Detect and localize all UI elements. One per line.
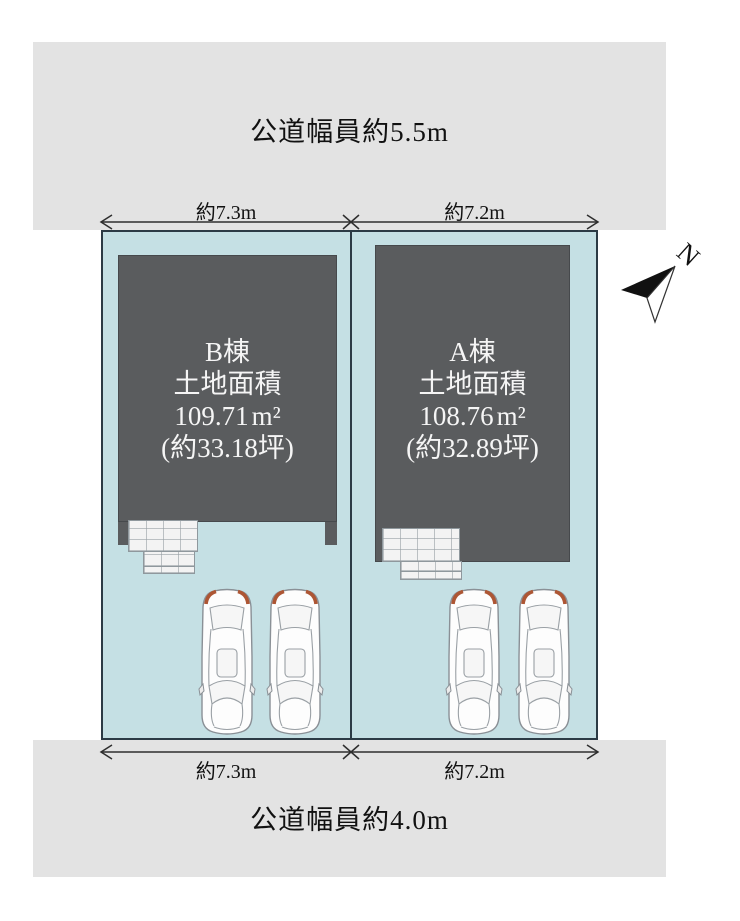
- dim-bottom-left-label: 約7.3m: [101, 755, 351, 784]
- area-line: 109.71m²: [119, 400, 336, 432]
- car-icon: [266, 587, 324, 735]
- building-b-label: B棟 土地面積 109.71m² (約33.18坪): [119, 336, 336, 464]
- porch-a-step: [400, 571, 462, 580]
- north-label: N: [671, 237, 706, 272]
- site-plan: 公道幅員約5.5m 公道幅員約4.0m B棟 土地面積 109.71m² (約3…: [0, 0, 740, 921]
- car-icon: [198, 587, 256, 735]
- road-bottom-label: 公道幅員約4.0m: [33, 798, 666, 837]
- car-icon: [445, 587, 503, 735]
- porch-b-tiles: [128, 520, 198, 552]
- porch-a-tiles: [382, 528, 460, 562]
- area-caption: 土地面積: [119, 368, 336, 400]
- porch-b-step: [143, 566, 195, 574]
- building-b-corner-wing: [325, 520, 337, 545]
- area-caption: 土地面積: [376, 368, 569, 400]
- building-a-label: A棟 土地面積 108.76m² (約32.89坪): [376, 336, 569, 464]
- north-arrow-icon: N: [611, 236, 706, 331]
- area-tsubo: (約32.89坪): [376, 432, 569, 464]
- area-line: 108.76m²: [376, 400, 569, 432]
- building-b: B棟 土地面積 109.71m² (約33.18坪): [118, 255, 337, 522]
- dim-top-right-label: 約7.2m: [351, 196, 598, 225]
- dim-bottom-right-label: 約7.2m: [351, 755, 598, 784]
- building-a: A棟 土地面積 108.76m² (約32.89坪): [375, 245, 570, 562]
- building-name: A棟: [376, 336, 569, 368]
- porch-b-step: [143, 551, 195, 567]
- road-top-label: 公道幅員約5.5m: [33, 110, 666, 149]
- car-icon: [515, 587, 573, 735]
- area-tsubo: (約33.18坪): [119, 432, 336, 464]
- building-name: B棟: [119, 336, 336, 368]
- dim-top-left-label: 約7.3m: [101, 196, 351, 225]
